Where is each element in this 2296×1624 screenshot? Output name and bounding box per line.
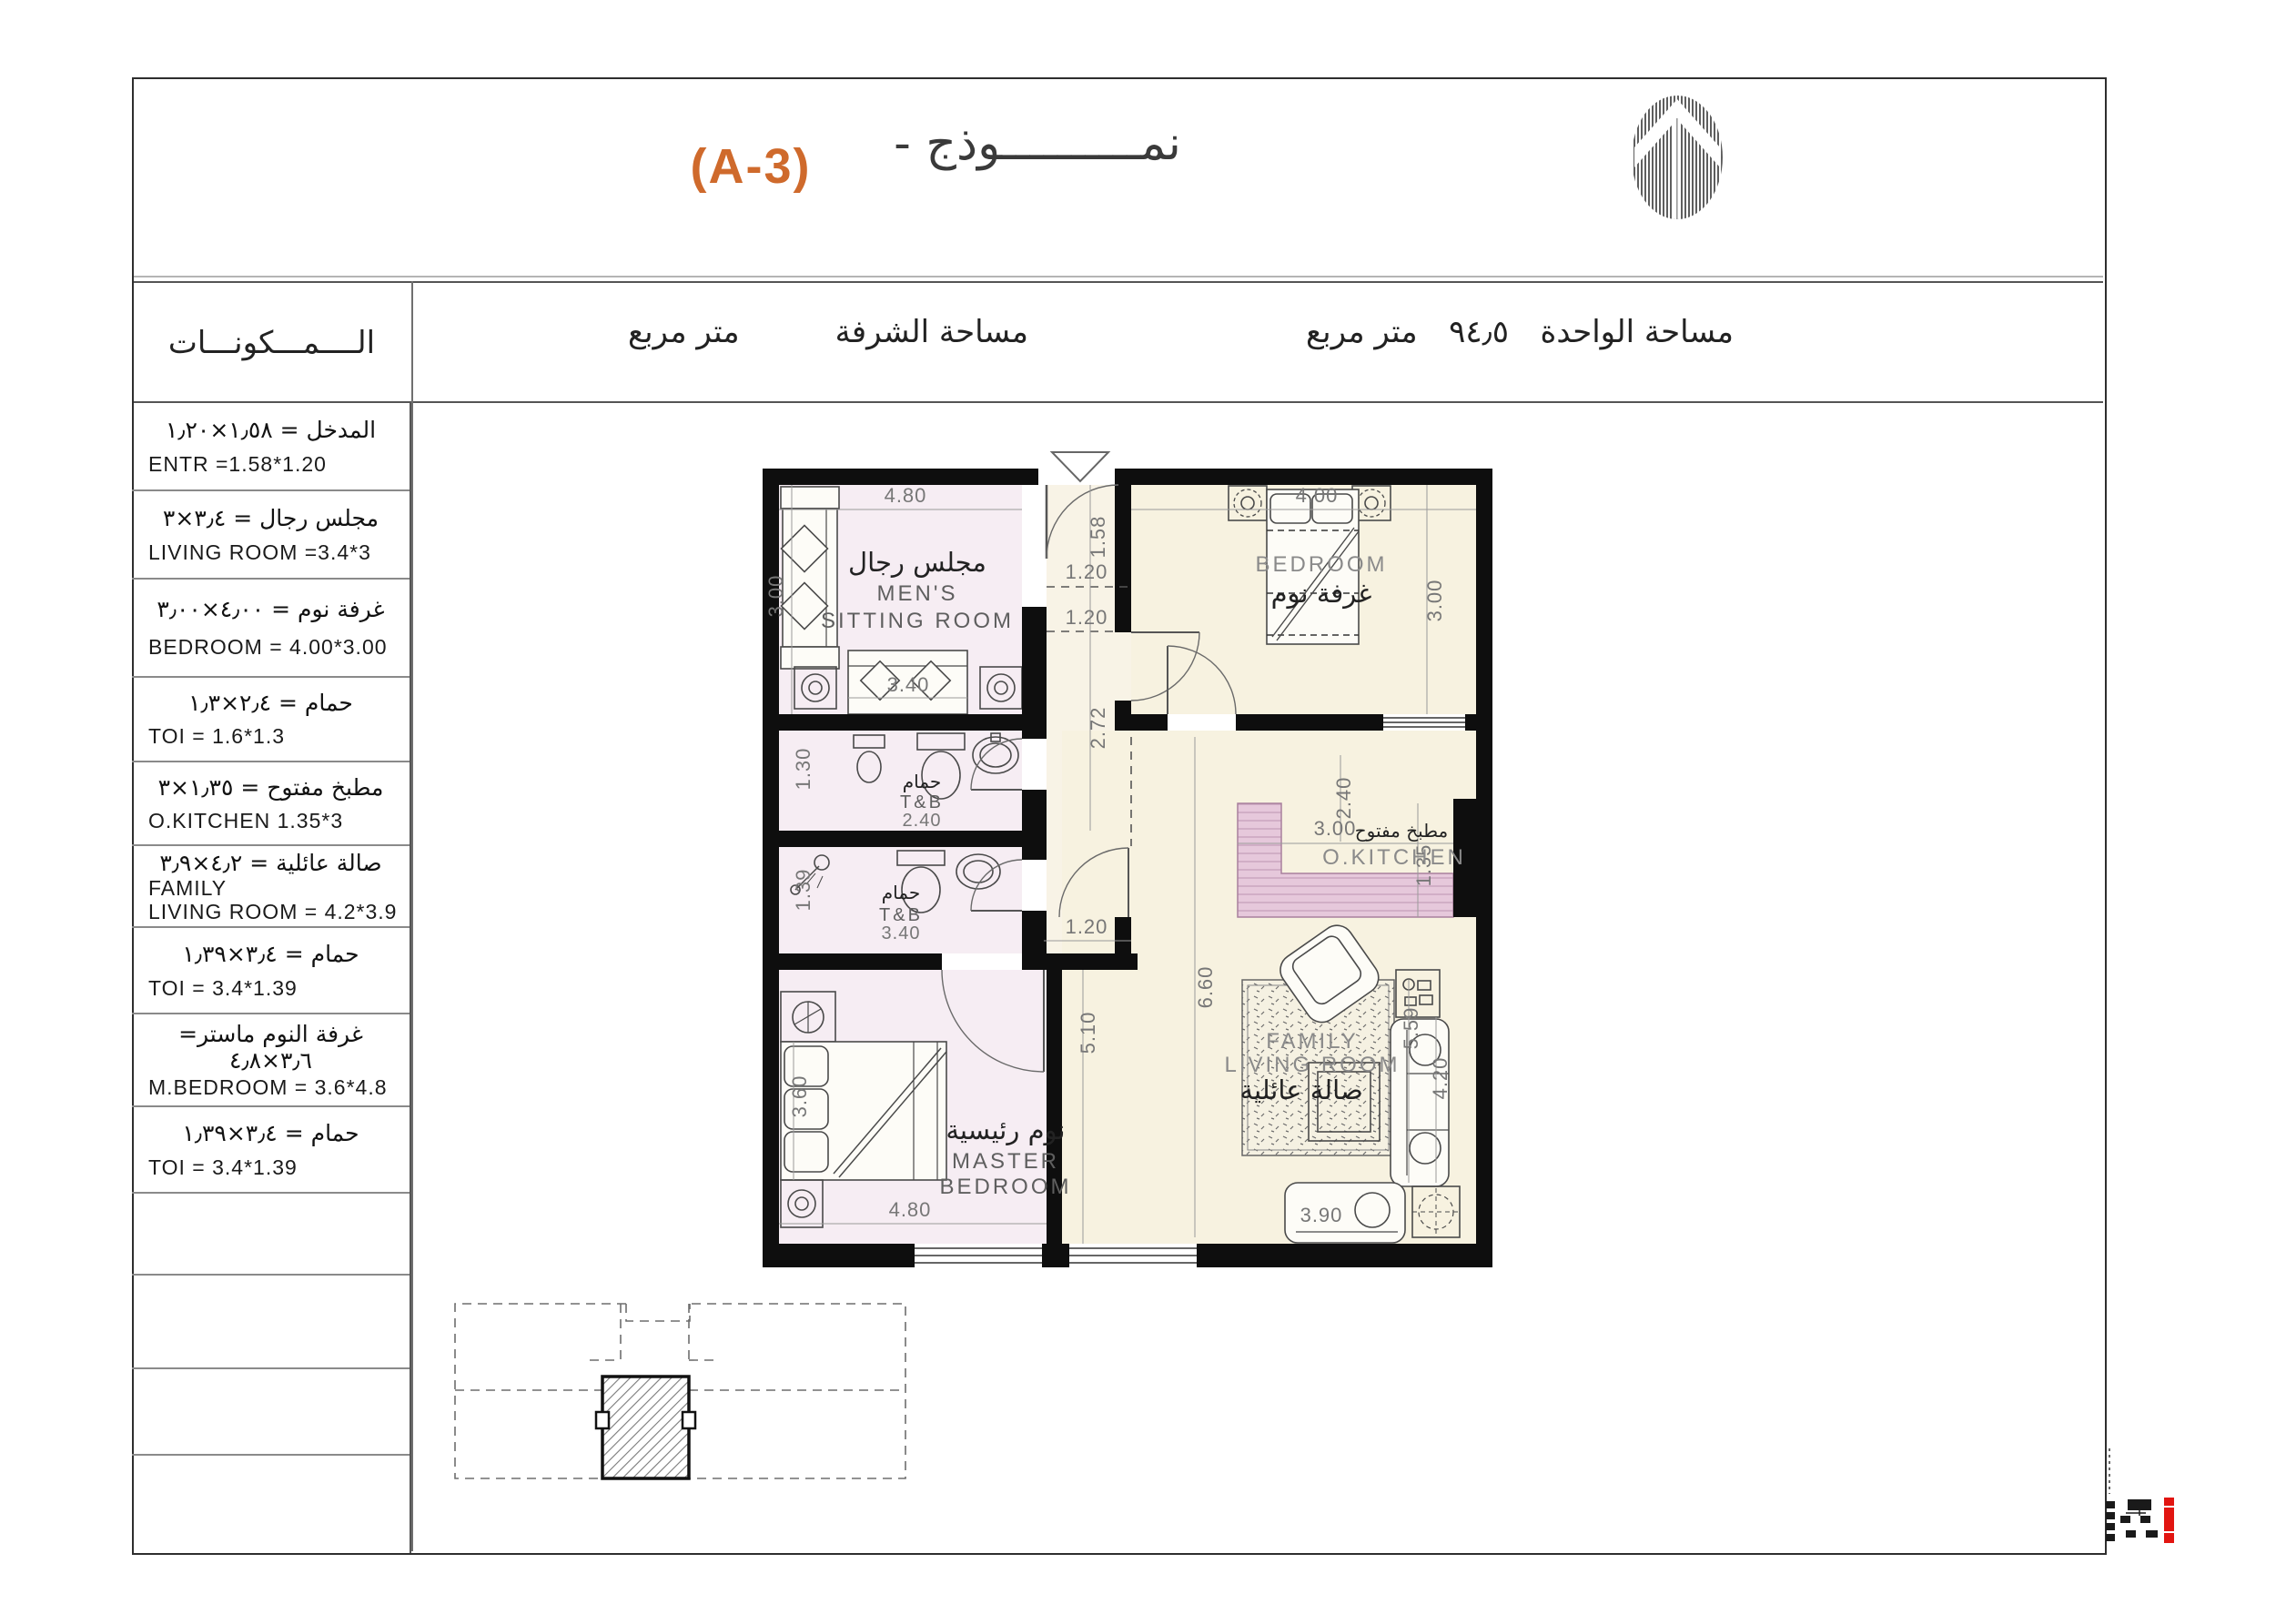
corner-stamp bbox=[2093, 1437, 2275, 1565]
row-arabic: غرفة النوم ماستر= ٣٫٦×٤٫٨ bbox=[141, 1021, 400, 1074]
dim-sofa: 3.40 bbox=[887, 673, 930, 696]
table-row-toilet-2: حمام = ٣٫٤×١٫٣٩ TOI = 3.4*1.39 bbox=[132, 928, 410, 1014]
dim-sitting-depth: 3.00 bbox=[764, 575, 787, 618]
label-bathroom-1-size: 2.40 bbox=[903, 811, 942, 831]
label-bathroom-2-ar: حمام bbox=[882, 882, 920, 903]
title-divider-lower bbox=[134, 281, 2103, 283]
row-english: O.KITCHEN 1.35*3 bbox=[141, 809, 400, 832]
row-english: FAMILY LIVING ROOM = 4.2*3.9 bbox=[141, 876, 400, 924]
row-english: TOI = 3.4*1.39 bbox=[141, 976, 400, 1000]
table-row-living-room: مجلس رجال = ٣٫٤×٣ LIVING ROOM =3.4*3 bbox=[132, 491, 410, 580]
table-row-family-living: صالة عائلية = ٤٫٢×٣٫٩ FAMILY LIVING ROOM… bbox=[132, 846, 410, 928]
header-unit-area: مساحة الواحدة ٩٤٫٥ متر مربع bbox=[1306, 314, 1734, 350]
label-sitting-en2: SITTING ROOM bbox=[821, 609, 1014, 633]
table-row-toilet-1: حمام = ٢٫٤×١٫٣ TOI = 1.6*1.3 bbox=[132, 678, 410, 762]
label-bedroom-en: BEDROOM bbox=[1255, 552, 1387, 577]
header-divider bbox=[134, 401, 2103, 403]
row-arabic: حمام = ٢٫٤×١٫٣ bbox=[141, 690, 400, 716]
label-family-ar: صالة عائلية bbox=[1239, 1074, 1362, 1105]
dim-entry: 1.58 bbox=[1087, 516, 1109, 559]
unit-notch-right bbox=[683, 1412, 695, 1428]
header-components-label: الــــمـــكونـــات bbox=[132, 285, 411, 401]
unit-area-unit: متر مربع bbox=[1306, 314, 1418, 350]
company-logo bbox=[1629, 91, 1725, 224]
title-divider-upper bbox=[134, 276, 2103, 277]
row-arabic: مطبخ مفتوح = ١٫٣٥×٣ bbox=[141, 774, 400, 801]
dim-living-clear: 5.10 bbox=[1077, 1012, 1099, 1054]
table-row-entrance: المدخل = ١٫٥٨×١٫٢٠ ENTR =1.58*1.20 bbox=[132, 403, 410, 491]
sidebar-divider bbox=[411, 281, 413, 1551]
dim-corridor: 2.72 bbox=[1087, 707, 1109, 750]
table-row-empty bbox=[132, 1276, 410, 1369]
floor-plan: 4.80 4.00 3.00 3.00 1.58 1.20 1.20 2.72 … bbox=[728, 428, 1547, 1292]
table-row-bedroom: غرفة نوم = ٤٫٠٠×٣٫٠٠ BEDROOM = 4.00*3.00 bbox=[132, 580, 410, 678]
label-family-en1: FAMILY bbox=[1266, 1029, 1359, 1054]
label-master-en1: MASTER bbox=[952, 1149, 1059, 1174]
dim-bedroom-width: 4.00 bbox=[1296, 484, 1339, 507]
unit-notch-left bbox=[596, 1412, 609, 1428]
row-english: TOI = 3.4*1.39 bbox=[141, 1155, 400, 1179]
row-english: BEDROOM = 4.00*3.00 bbox=[141, 635, 400, 659]
dim-master-width: 4.80 bbox=[889, 1198, 932, 1221]
label-sitting-ar: مجلس رجال bbox=[848, 547, 986, 578]
label-kitchen-en: O.KITCHEN bbox=[1322, 845, 1466, 870]
table-row-empty bbox=[132, 1456, 410, 1553]
dim-sofa-right: 4.20 bbox=[1429, 1057, 1451, 1100]
unit-location-highlight bbox=[602, 1377, 689, 1478]
dim-sofa-bottom: 3.90 bbox=[1300, 1204, 1343, 1226]
row-english: LIVING ROOM =3.4*3 bbox=[141, 540, 400, 564]
dim-master-door: 1.20 bbox=[1066, 915, 1108, 938]
row-arabic: صالة عائلية = ٤٫٢×٣٫٩ bbox=[141, 850, 400, 876]
label-family-en2: LIVING ROOM bbox=[1224, 1053, 1400, 1077]
dim-bathroom-1-width: 1.30 bbox=[792, 748, 814, 791]
dim-bedroom-depth: 3.00 bbox=[1423, 580, 1446, 622]
label-master-en2: BEDROOM bbox=[939, 1175, 1071, 1199]
dim-hall: 2.40 bbox=[1332, 777, 1355, 820]
sheet-title-arabic: نمــــــــــوذج - bbox=[846, 116, 1229, 171]
unit-area-label: مساحة الواحدة bbox=[1541, 314, 1734, 350]
table-row-empty bbox=[132, 1194, 410, 1276]
row-arabic: غرفة نوم = ٤٫٠٠×٣٫٠٠ bbox=[141, 596, 400, 622]
row-arabic: مجلس رجال = ٣٫٤×٣ bbox=[141, 505, 400, 531]
label-bathroom-1-en: T&B bbox=[900, 792, 944, 812]
unit-area-value: ٩٤٫٥ bbox=[1449, 314, 1509, 350]
balcony-area-label: مساحة الشرفة bbox=[835, 314, 1028, 350]
label-bedroom-ar: غرفة نوم bbox=[1271, 578, 1372, 609]
dim-living-length: 6.60 bbox=[1194, 966, 1217, 1009]
dim-living-length-2: 5.59 bbox=[1400, 1007, 1422, 1050]
table-row-master-bedroom: غرفة النوم ماستر= ٣٫٦×٤٫٨ M.BEDROOM = 3.… bbox=[132, 1014, 410, 1107]
row-arabic: المدخل = ١٫٥٨×١٫٢٠ bbox=[141, 417, 400, 443]
dim-sitting-width: 4.80 bbox=[885, 484, 927, 507]
dim-passage-2: 1.20 bbox=[1066, 606, 1108, 629]
table-row-empty bbox=[132, 1369, 410, 1456]
header-balcony-area: مساحة الشرفة متر مربع bbox=[628, 314, 1028, 350]
label-sitting-en1: MEN'S bbox=[877, 581, 958, 606]
row-english: ENTR =1.58*1.20 bbox=[141, 452, 400, 476]
stamp-marks bbox=[2106, 1499, 2158, 1541]
table-row-toilet-3: حمام = ٣٫٤×١٫٣٩ TOI = 3.4*1.39 bbox=[132, 1107, 410, 1194]
components-table: المدخل = ١٫٥٨×١٫٢٠ ENTR =1.58*1.20 مجلس … bbox=[132, 403, 411, 1553]
label-bathroom-2-en: T&B bbox=[879, 905, 923, 925]
label-bathroom-1-ar: حمام bbox=[903, 771, 941, 792]
dim-master-depth: 3.60 bbox=[788, 1075, 811, 1118]
drawing-sheet: نمــــــــــوذج - (A-3) الــــمـــكونـــ… bbox=[0, 0, 2296, 1624]
stamp-red-bar bbox=[2164, 1498, 2174, 1543]
label-master-ar: نوم رئيسية bbox=[946, 1115, 1065, 1145]
dim-passage-1: 1.20 bbox=[1066, 560, 1108, 583]
table-row-kitchen: مطبخ مفتوح = ١٫٣٥×٣ O.KITCHEN 1.35*3 bbox=[132, 762, 410, 846]
balcony-area-unit: متر مربع bbox=[628, 314, 740, 350]
key-plan bbox=[419, 1269, 946, 1506]
row-arabic: حمام = ٣٫٤×١٫٣٩ bbox=[141, 1120, 400, 1146]
row-english: TOI = 1.6*1.3 bbox=[141, 724, 400, 748]
unit-model-code: (A-3) bbox=[655, 138, 846, 195]
dim-kitchen-width: 3.00 bbox=[1314, 817, 1357, 840]
label-kitchen-ar: مطبخ مفتوح bbox=[1355, 820, 1449, 842]
row-english: M.BEDROOM = 3.6*4.8 bbox=[141, 1075, 400, 1099]
entry-marker-icon bbox=[1052, 452, 1108, 481]
label-bathroom-2-size: 3.40 bbox=[882, 923, 921, 943]
dim-bathroom-2-width: 1.39 bbox=[792, 869, 814, 912]
row-arabic: حمام = ٣٫٤×١٫٣٩ bbox=[141, 941, 400, 967]
